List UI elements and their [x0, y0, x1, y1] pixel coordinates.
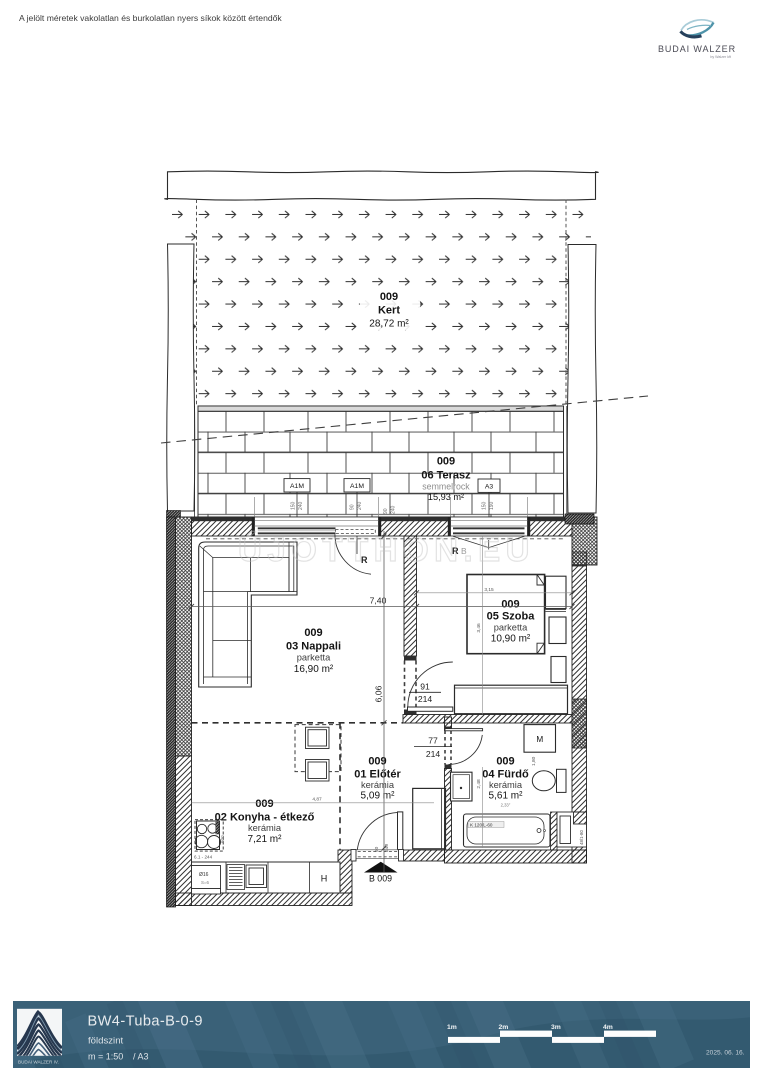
svg-text:kerámia: kerámia — [489, 780, 523, 790]
svg-text:009: 009 — [501, 599, 519, 611]
svg-text:15,93 m²: 15,93 m² — [428, 492, 464, 502]
svg-text:5,09 m²: 5,09 m² — [361, 791, 396, 802]
svg-text:M: M — [536, 735, 543, 744]
svg-text:kerámia: kerámia — [361, 780, 395, 790]
svg-text:16,90 m²: 16,90 m² — [294, 664, 334, 675]
svg-text:04 Fürdő: 04 Fürdő — [482, 769, 529, 781]
svg-text:4m: 4m — [603, 1024, 613, 1031]
svg-text:240: 240 — [298, 501, 304, 510]
svg-text:600: 600 — [220, 835, 225, 843]
svg-text:190: 190 — [489, 501, 495, 510]
svg-text:BW4-Tuba-B-0-9: BW4-Tuba-B-0-9 — [88, 1014, 203, 1030]
svg-text:90: 90 — [350, 504, 356, 510]
svg-text:150: 150 — [482, 501, 488, 510]
svg-text:240: 240 — [391, 505, 397, 514]
svg-text:2,48: 2,48 — [476, 779, 482, 789]
svg-text:02 Konyha - étkező: 02 Konyha - étkező — [215, 812, 315, 824]
svg-text:4,87: 4,87 — [312, 797, 322, 803]
svg-text:m = 1:50: m = 1:50 — [88, 1052, 123, 1062]
svg-text:009: 009 — [304, 627, 322, 639]
svg-text:B 009: B 009 — [369, 874, 392, 884]
svg-text:009: 009 — [496, 756, 514, 768]
svg-text:03 Nappali: 03 Nappali — [286, 641, 341, 653]
svg-text:3m: 3m — [551, 1024, 561, 1031]
svg-text:009: 009 — [437, 456, 455, 468]
svg-text:06 Terasz: 06 Terasz — [421, 470, 471, 482]
svg-text:7,21 m²: 7,21 m² — [248, 834, 283, 845]
svg-text:A3: A3 — [485, 484, 494, 491]
svg-text:2m: 2m — [499, 1024, 509, 1031]
svg-text:240: 240 — [357, 501, 363, 510]
svg-text:05 Szoba: 05 Szoba — [487, 611, 536, 623]
svg-text:parketta: parketta — [494, 623, 528, 633]
svg-text:H: H — [321, 874, 328, 884]
svg-text:Kert: Kert — [378, 305, 400, 317]
svg-text:214: 214 — [418, 694, 433, 704]
svg-text:6,06: 6,06 — [374, 685, 384, 702]
svg-text:009: 009 — [380, 291, 398, 303]
svg-text:kerámia: kerámia — [248, 823, 282, 833]
svg-text:28,72 m²: 28,72 m² — [369, 319, 409, 330]
svg-text:3,46: 3,46 — [476, 623, 482, 633]
svg-text:90: 90 — [383, 508, 389, 514]
svg-text:A1M: A1M — [290, 483, 304, 490]
svg-text:77: 77 — [428, 736, 438, 746]
svg-text:/ A3: / A3 — [133, 1052, 149, 1062]
svg-text:A jelölt méretek vakolatlan és: A jelölt méretek vakolatlan és burkolatl… — [19, 13, 282, 23]
svg-text:10,90 m²: 10,90 m² — [491, 634, 531, 645]
svg-text:Ø16: Ø16 — [199, 872, 209, 878]
svg-text:1m: 1m — [447, 1024, 457, 1031]
svg-text:földszint: földszint — [88, 1036, 124, 1047]
svg-text:214: 214 — [426, 749, 441, 759]
svg-text:01 Előtér: 01 Előtér — [354, 769, 401, 781]
svg-text:BUDAI WALZER IV.: BUDAI WALZER IV. — [18, 1060, 59, 1065]
svg-text:ÚJOTTHON.EU: ÚJOTTHON.EU — [238, 531, 535, 568]
svg-text:2025. 06. 16.: 2025. 06. 16. — [706, 1050, 745, 1057]
svg-text:150: 150 — [291, 501, 297, 510]
svg-text:K 120/L-60: K 120/L-60 — [470, 822, 493, 827]
svg-text:5,61 m²: 5,61 m² — [489, 791, 524, 802]
svg-text:parketta: parketta — [297, 653, 331, 663]
svg-text:by Walzer kft: by Walzer kft — [710, 55, 731, 59]
svg-text:1,80: 1,80 — [531, 756, 537, 766]
svg-text:6.1 - 244: 6.1 - 244 — [194, 855, 213, 860]
svg-text:3,15: 3,15 — [484, 587, 494, 593]
svg-text:91: 91 — [420, 682, 430, 692]
svg-text:009: 009 — [255, 798, 273, 810]
svg-text:90: 90 — [374, 846, 380, 852]
svg-text:2,33°: 2,33° — [501, 803, 511, 808]
svg-text:BUDAI WALZER: BUDAI WALZER — [658, 44, 736, 54]
svg-text:S=6: S=6 — [201, 880, 209, 885]
svg-text:A1M: A1M — [350, 483, 364, 490]
svg-text:48/1-80: 48/1-80 — [579, 830, 584, 845]
svg-text:semmelrock: semmelrock — [422, 482, 470, 492]
svg-text:240: 240 — [384, 844, 390, 852]
